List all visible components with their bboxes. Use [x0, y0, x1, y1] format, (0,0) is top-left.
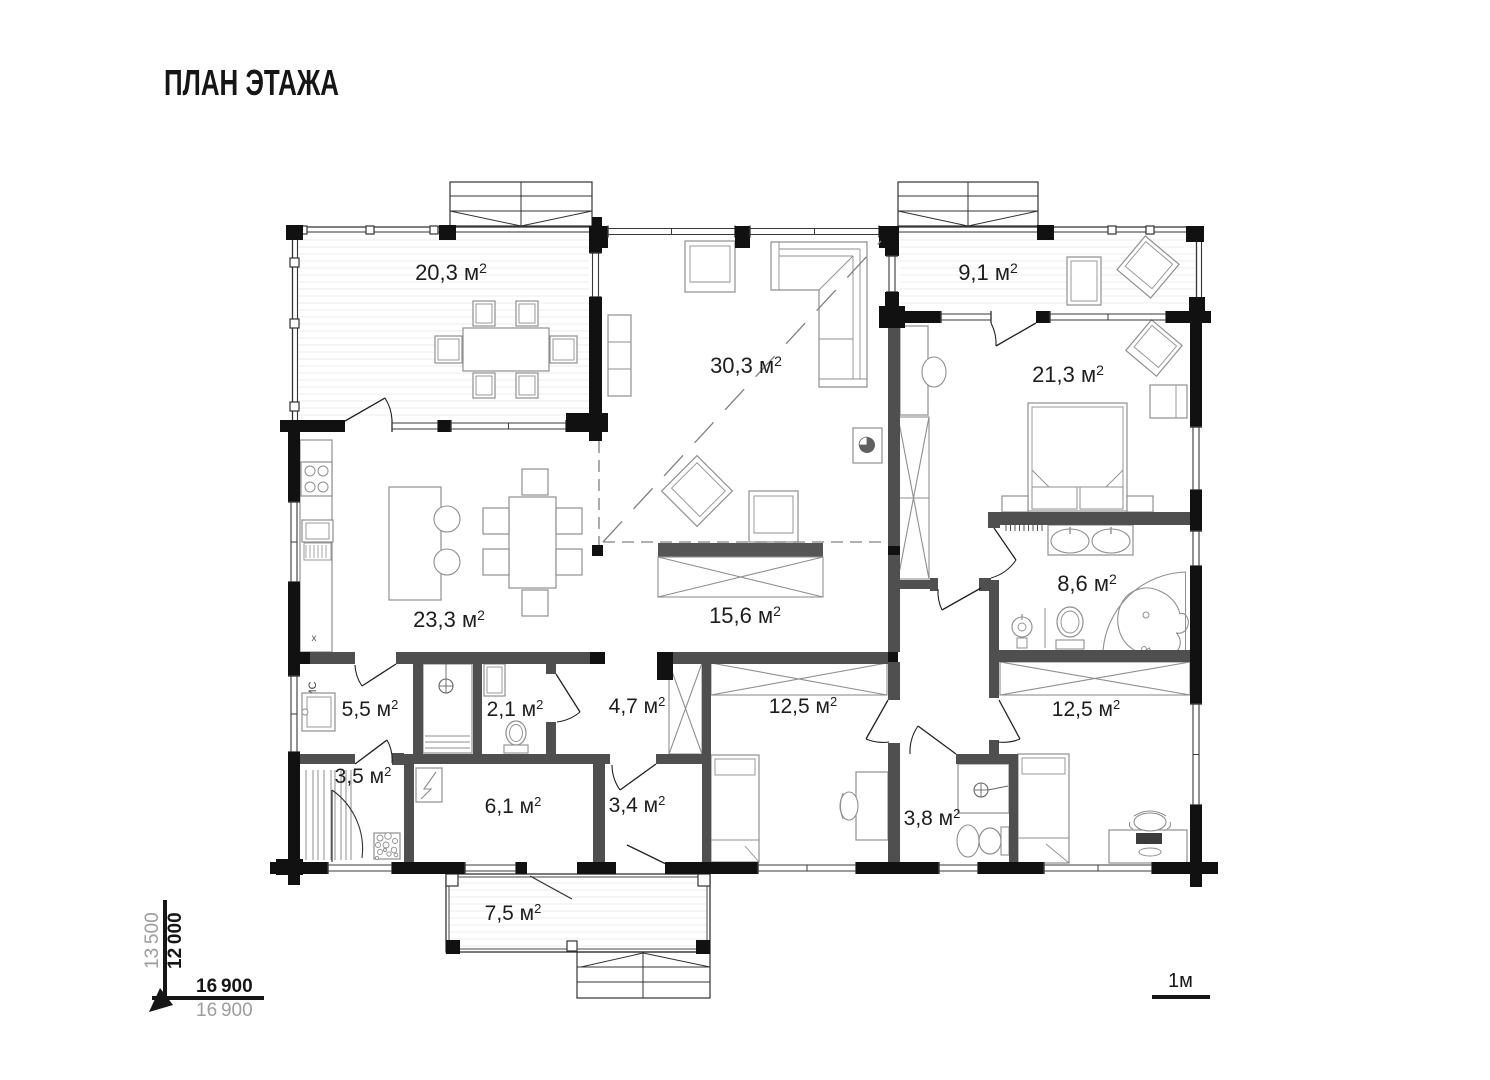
svg-text:12,5 м2: 12,5 м2	[1052, 697, 1120, 721]
svg-text:13 500: 13 500	[142, 912, 163, 969]
svg-text:20,3 м2: 20,3 м2	[415, 260, 487, 285]
svg-text:12,5 м2: 12,5 м2	[769, 694, 837, 718]
svg-text:23,3 м2: 23,3 м2	[413, 607, 485, 632]
svg-text:ПЛАН ЭТАЖА: ПЛАН ЭТАЖА	[164, 62, 339, 103]
svg-text:30,3 м2: 30,3 м2	[710, 353, 782, 378]
svg-text:4,7 м2: 4,7 м2	[609, 694, 666, 718]
svg-text:3,4 м2: 3,4 м2	[609, 793, 666, 817]
svg-text:12 000: 12 000	[165, 912, 186, 969]
svg-text:6,1 м2: 6,1 м2	[485, 794, 542, 818]
svg-text:3,8 м2: 3,8 м2	[904, 806, 961, 830]
svg-text:8,6 м2: 8,6 м2	[1057, 571, 1117, 596]
svg-text:1м: 1м	[1168, 970, 1193, 992]
svg-text:9,1 м2: 9,1 м2	[958, 260, 1018, 285]
svg-text:5,5 м2: 5,5 м2	[342, 697, 399, 721]
svg-text:16 900: 16 900	[196, 1000, 253, 1021]
svg-text:x: x	[312, 633, 317, 644]
svg-text:15,6 м2: 15,6 м2	[709, 603, 781, 628]
svg-text:16 900: 16 900	[196, 976, 253, 997]
svg-text:21,3 м2: 21,3 м2	[1032, 362, 1104, 387]
svg-text:7,5 м2: 7,5 м2	[485, 901, 542, 925]
svg-text:2,1 м2: 2,1 м2	[487, 697, 544, 721]
svg-text:3,5 м2: 3,5 м2	[335, 764, 392, 788]
